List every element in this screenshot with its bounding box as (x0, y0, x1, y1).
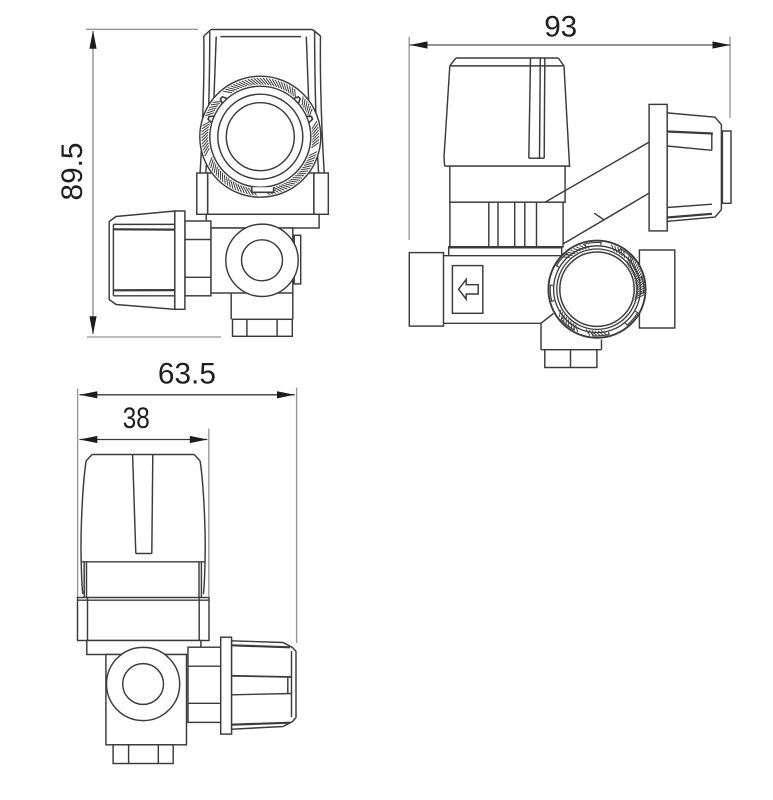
svg-text:38: 38 (123, 402, 150, 435)
svg-text:89.5: 89.5 (56, 143, 89, 201)
svg-text:63.5: 63.5 (158, 358, 216, 391)
svg-text:93: 93 (544, 10, 577, 43)
